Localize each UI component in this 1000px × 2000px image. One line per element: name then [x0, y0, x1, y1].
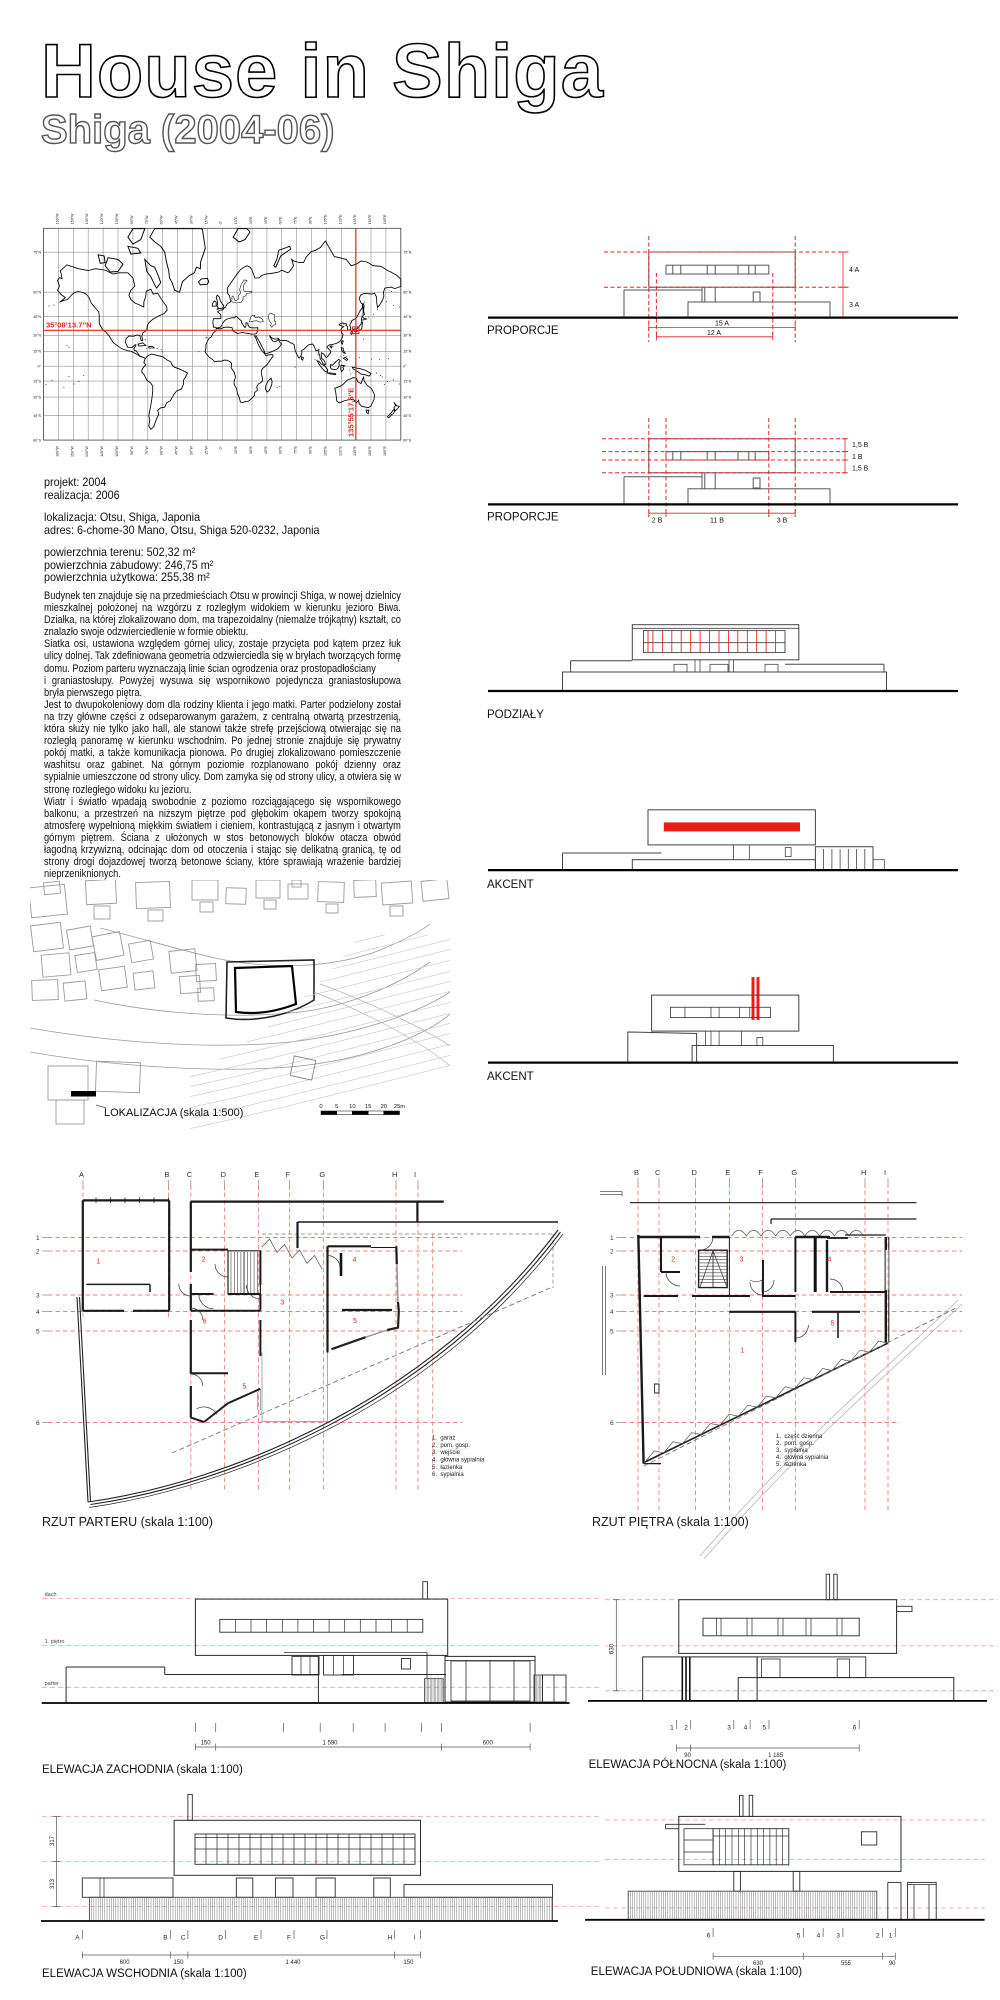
svg-text:15°N: 15°N [403, 350, 411, 354]
svg-text:F: F [286, 1170, 291, 1179]
svg-text:dach: dach [45, 1592, 57, 1598]
svg-text:165°E: 165°E [383, 214, 387, 224]
svg-text:150: 150 [403, 1960, 414, 1966]
svg-text:ELEWACJA PÓŁNOCNA (skala 1:100: ELEWACJA PÓŁNOCNA (skala 1:100) [589, 1758, 787, 1771]
svg-text:F: F [287, 1935, 291, 1942]
svg-text:2: 2 [610, 1249, 614, 1256]
svg-text:ELEWACJA WSCHODNIA (skala 1:10: ELEWACJA WSCHODNIA (skala 1:100) [42, 1968, 247, 1980]
svg-text:45°S: 45°S [33, 414, 41, 418]
svg-text:A: A [75, 1935, 80, 1942]
svg-text:I: I [414, 1935, 416, 1942]
svg-text:630: 630 [610, 1643, 616, 1654]
svg-text:4 A: 4 A [849, 267, 859, 274]
svg-text:4: 4 [828, 1257, 832, 1264]
svg-text:5: 5 [763, 1725, 767, 1732]
svg-text:60°S: 60°S [403, 439, 411, 443]
svg-text:25m: 25m [394, 1104, 405, 1110]
svg-text:1 B: 1 B [852, 454, 863, 461]
svg-text:45°S: 45°S [403, 414, 411, 418]
svg-text:35°08’13.7”N: 35°08’13.7”N [46, 321, 92, 330]
svg-text:3 A: 3 A [849, 302, 859, 309]
svg-text:150: 150 [201, 1741, 212, 1747]
svg-text:1: 1 [889, 1933, 893, 1940]
svg-text:313: 313 [50, 1878, 56, 1889]
svg-text:2: 2 [202, 1257, 206, 1264]
svg-text:0°: 0° [219, 446, 223, 450]
svg-text:15: 15 [365, 1104, 371, 1110]
svg-text:45°N: 45°N [33, 315, 41, 319]
svg-text:10: 10 [349, 1104, 355, 1110]
svg-text:H: H [392, 1170, 397, 1179]
svg-text:555: 555 [841, 1961, 852, 1967]
svg-text:15°E: 15°E [234, 216, 238, 224]
svg-text:E: E [254, 1170, 259, 1179]
svg-text:G: G [320, 1935, 325, 1942]
svg-text:4: 4 [353, 1257, 357, 1264]
svg-text:B: B [634, 1168, 639, 1177]
svg-text:G: G [791, 1168, 797, 1177]
svg-text:2. pom. gosp.: 2. pom. gosp. [776, 1441, 814, 1447]
svg-text:2. pom. gosp.: 2. pom. gosp. [432, 1443, 470, 1449]
svg-text:30°E: 30°E [249, 446, 253, 454]
svg-text:PROPORCJE: PROPORCJE [487, 512, 559, 524]
svg-text:ELEWACJA ZACHODNIA (skala 1:10: ELEWACJA ZACHODNIA (skala 1:100) [42, 1764, 243, 1776]
svg-text:0°: 0° [403, 365, 407, 369]
svg-text:90: 90 [889, 1961, 896, 1967]
svg-text:D: D [221, 1170, 227, 1179]
svg-text:30°S: 30°S [33, 395, 41, 399]
svg-text:150°E: 150°E [368, 214, 372, 224]
svg-text:AKCENT: AKCENT [487, 1071, 534, 1083]
svg-text:PROPORCJE: PROPORCJE [487, 325, 559, 337]
svg-text:135°W: 135°W [85, 445, 89, 456]
svg-text:60°S: 60°S [33, 439, 41, 443]
svg-text:105°W: 105°W [115, 213, 119, 224]
svg-text:G: G [277, 1560, 289, 1564]
svg-text:5: 5 [797, 1933, 801, 1940]
svg-text:1 440: 1 440 [285, 1960, 301, 1966]
svg-text:1,5 B: 1,5 B [852, 466, 869, 473]
svg-text:30°W: 30°W [189, 445, 193, 454]
svg-text:C: C [415, 1560, 427, 1564]
svg-text:5: 5 [36, 1329, 40, 1336]
svg-text:D: D [218, 1935, 223, 1942]
svg-text:60°E: 60°E [279, 216, 283, 224]
svg-text:AKCENT: AKCENT [487, 879, 534, 891]
svg-text:75°W: 75°W [145, 215, 149, 224]
svg-text:30°S: 30°S [403, 395, 411, 399]
svg-text:317: 317 [50, 1835, 56, 1846]
svg-text:E: E [725, 1168, 730, 1177]
svg-text:600: 600 [120, 1960, 131, 1966]
svg-text:120°E: 120°E [338, 214, 342, 224]
svg-text:45°E: 45°E [264, 216, 268, 224]
svg-text:RZUT PIĘTRA (skala 1:100): RZUT PIĘTRA (skala 1:100) [592, 1515, 749, 1529]
svg-text:165°E: 165°E [383, 446, 387, 456]
svg-text:105°W: 105°W [115, 445, 119, 456]
svg-text:45°W: 45°W [175, 445, 179, 454]
svg-text:60°W: 60°W [160, 445, 164, 454]
svg-text:ELEWACJA POŁUDNIOWA (skala 1:1: ELEWACJA POŁUDNIOWA (skala 1:100) [591, 1966, 802, 1978]
svg-text:3: 3 [727, 1725, 731, 1732]
svg-text:6: 6 [610, 1420, 614, 1427]
svg-text:2 B: 2 B [652, 518, 663, 525]
svg-text:0: 0 [319, 1104, 322, 1110]
svg-text:60°E: 60°E [279, 446, 283, 454]
svg-text:30°E: 30°E [249, 216, 253, 224]
svg-text:C: C [187, 1170, 193, 1179]
svg-text:1: 1 [670, 1725, 674, 1732]
svg-text:F: F [758, 1168, 763, 1177]
svg-text:D: D [692, 1168, 698, 1177]
svg-text:5: 5 [242, 1383, 246, 1390]
svg-text:RZUT PARTERU (skala 1:100): RZUT PARTERU (skala 1:100) [42, 1515, 213, 1529]
svg-text:H: H [388, 1935, 393, 1942]
svg-text:1: 1 [36, 1235, 40, 1242]
svg-text:5: 5 [335, 1104, 338, 1110]
svg-text:6: 6 [203, 1319, 207, 1326]
svg-text:3 B: 3 B [777, 518, 788, 525]
svg-text:105°E: 105°E [323, 214, 327, 224]
svg-text:135°E: 135°E [353, 446, 357, 456]
svg-text:E: E [346, 1560, 357, 1564]
svg-text:120°W: 120°W [100, 213, 104, 224]
svg-text:2: 2 [876, 1933, 880, 1940]
svg-text:5. łazienka: 5. łazienka [776, 1462, 807, 1468]
svg-text:6. sypialnia: 6. sypialnia [432, 1472, 464, 1478]
svg-text:90°E: 90°E [309, 446, 313, 454]
svg-text:11 B: 11 B [710, 518, 724, 525]
svg-text:A: A [79, 1170, 84, 1179]
svg-text:I: I [884, 1168, 886, 1177]
svg-text:1,5 B: 1,5 B [852, 442, 869, 449]
svg-text:1. część dzienna: 1. część dzienna [776, 1434, 823, 1440]
svg-text:1: 1 [97, 1259, 101, 1266]
svg-text:F: F [313, 1560, 323, 1564]
svg-text:15°W: 15°W [204, 445, 208, 454]
svg-text:2: 2 [684, 1725, 688, 1732]
svg-text:4: 4 [36, 1309, 40, 1316]
svg-text:6: 6 [707, 1933, 711, 1940]
svg-text:150°W: 150°W [70, 213, 74, 224]
svg-text:3. wejście: 3. wejście [432, 1450, 461, 1456]
svg-text:C: C [655, 1168, 661, 1177]
svg-text:I: I [414, 1170, 416, 1179]
svg-text:0°: 0° [219, 220, 223, 224]
svg-text:PODZIAŁY: PODZIAŁY [487, 709, 544, 721]
svg-text:4: 4 [817, 1933, 821, 1940]
svg-text:15 A: 15 A [715, 321, 729, 328]
svg-text:60°N: 60°N [403, 291, 411, 295]
svg-text:3. sypialnia: 3. sypialnia [776, 1448, 808, 1454]
svg-text:120°E: 120°E [338, 446, 342, 456]
svg-text:6: 6 [853, 1725, 857, 1732]
svg-text:parter: parter [45, 1681, 60, 1687]
svg-text:90°W: 90°W [130, 445, 134, 454]
svg-text:150°E: 150°E [368, 446, 372, 456]
svg-text:75°E: 75°E [294, 216, 298, 224]
svg-text:135°W: 135°W [85, 213, 89, 224]
svg-text:LOKALIZACJA (skala 1:500): LOKALIZACJA (skala 1:500) [104, 1107, 243, 1119]
svg-text:90°E: 90°E [309, 216, 313, 224]
svg-text:4. główna sypialnia: 4. główna sypialnia [432, 1458, 485, 1464]
svg-text:45°N: 45°N [403, 315, 411, 319]
svg-text:90°W: 90°W [130, 215, 134, 224]
svg-text:4: 4 [610, 1309, 614, 1316]
svg-text:105°E: 105°E [323, 446, 327, 456]
svg-text:A: A [523, 1560, 534, 1564]
svg-text:4: 4 [744, 1725, 748, 1732]
svg-text:3: 3 [280, 1299, 284, 1306]
svg-text:75°W: 75°W [145, 445, 149, 454]
svg-text:160°W: 160°W [56, 445, 60, 456]
svg-text:B: B [163, 1935, 167, 1942]
svg-text:5: 5 [353, 1318, 357, 1325]
svg-text:E: E [254, 1935, 259, 1942]
svg-text:15°S: 15°S [33, 379, 41, 383]
svg-text:30°W: 30°W [189, 215, 193, 224]
svg-text:60°W: 60°W [160, 215, 164, 224]
svg-text:15°S: 15°S [403, 379, 411, 383]
svg-text:H: H [861, 1168, 866, 1177]
svg-text:120°W: 120°W [100, 445, 104, 456]
svg-text:75°E: 75°E [294, 446, 298, 454]
svg-text:15°W: 15°W [204, 215, 208, 224]
svg-text:60°N: 60°N [33, 291, 41, 295]
svg-text:2: 2 [36, 1249, 40, 1256]
svg-text:15°E: 15°E [234, 446, 238, 454]
svg-text:30°N: 30°N [403, 334, 411, 338]
svg-text:2: 2 [671, 1257, 675, 1264]
svg-text:135°E: 135°E [353, 214, 357, 224]
svg-text:3: 3 [740, 1257, 744, 1264]
svg-text:75°N: 75°N [403, 251, 411, 255]
svg-text:150: 150 [173, 1960, 184, 1966]
svg-text:1: 1 [740, 1348, 744, 1355]
svg-text:B: B [434, 1560, 445, 1564]
svg-text:3: 3 [36, 1293, 40, 1300]
svg-text:160°W: 160°W [56, 213, 60, 224]
svg-text:3: 3 [836, 1933, 840, 1940]
svg-text:3: 3 [610, 1293, 614, 1300]
svg-text:45°W: 45°W [175, 215, 179, 224]
svg-text:G: G [319, 1170, 325, 1179]
svg-text:I: I [188, 1560, 192, 1564]
svg-text:20: 20 [381, 1104, 387, 1110]
svg-text:5. łazienka: 5. łazienka [432, 1465, 463, 1471]
svg-text:75°N: 75°N [33, 251, 41, 255]
svg-text:1: 1 [610, 1235, 614, 1242]
svg-text:1. piętro: 1. piętro [45, 1639, 65, 1645]
svg-text:D: D [378, 1560, 390, 1564]
svg-text:1 590: 1 590 [322, 1741, 338, 1747]
svg-text:150°W: 150°W [70, 445, 74, 456]
svg-text:600: 600 [483, 1741, 494, 1747]
svg-text:45°E: 45°E [264, 446, 268, 454]
svg-text:1. garaż: 1. garaż [432, 1436, 455, 1442]
svg-text:H: H [209, 1560, 221, 1564]
svg-text:15°N: 15°N [33, 350, 41, 354]
svg-text:6: 6 [36, 1420, 40, 1427]
svg-text:5: 5 [831, 1320, 835, 1327]
svg-text:5: 5 [610, 1329, 614, 1336]
svg-text:12 A: 12 A [707, 330, 721, 337]
svg-text:B: B [165, 1170, 170, 1179]
svg-text:135°55’17,5”E: 135°55’17,5”E [346, 388, 355, 437]
svg-text:30°N: 30°N [33, 334, 41, 338]
svg-text:0°: 0° [38, 365, 42, 369]
svg-text:C: C [181, 1935, 186, 1942]
svg-text:4. główna sypialnia: 4. główna sypialnia [776, 1455, 829, 1461]
